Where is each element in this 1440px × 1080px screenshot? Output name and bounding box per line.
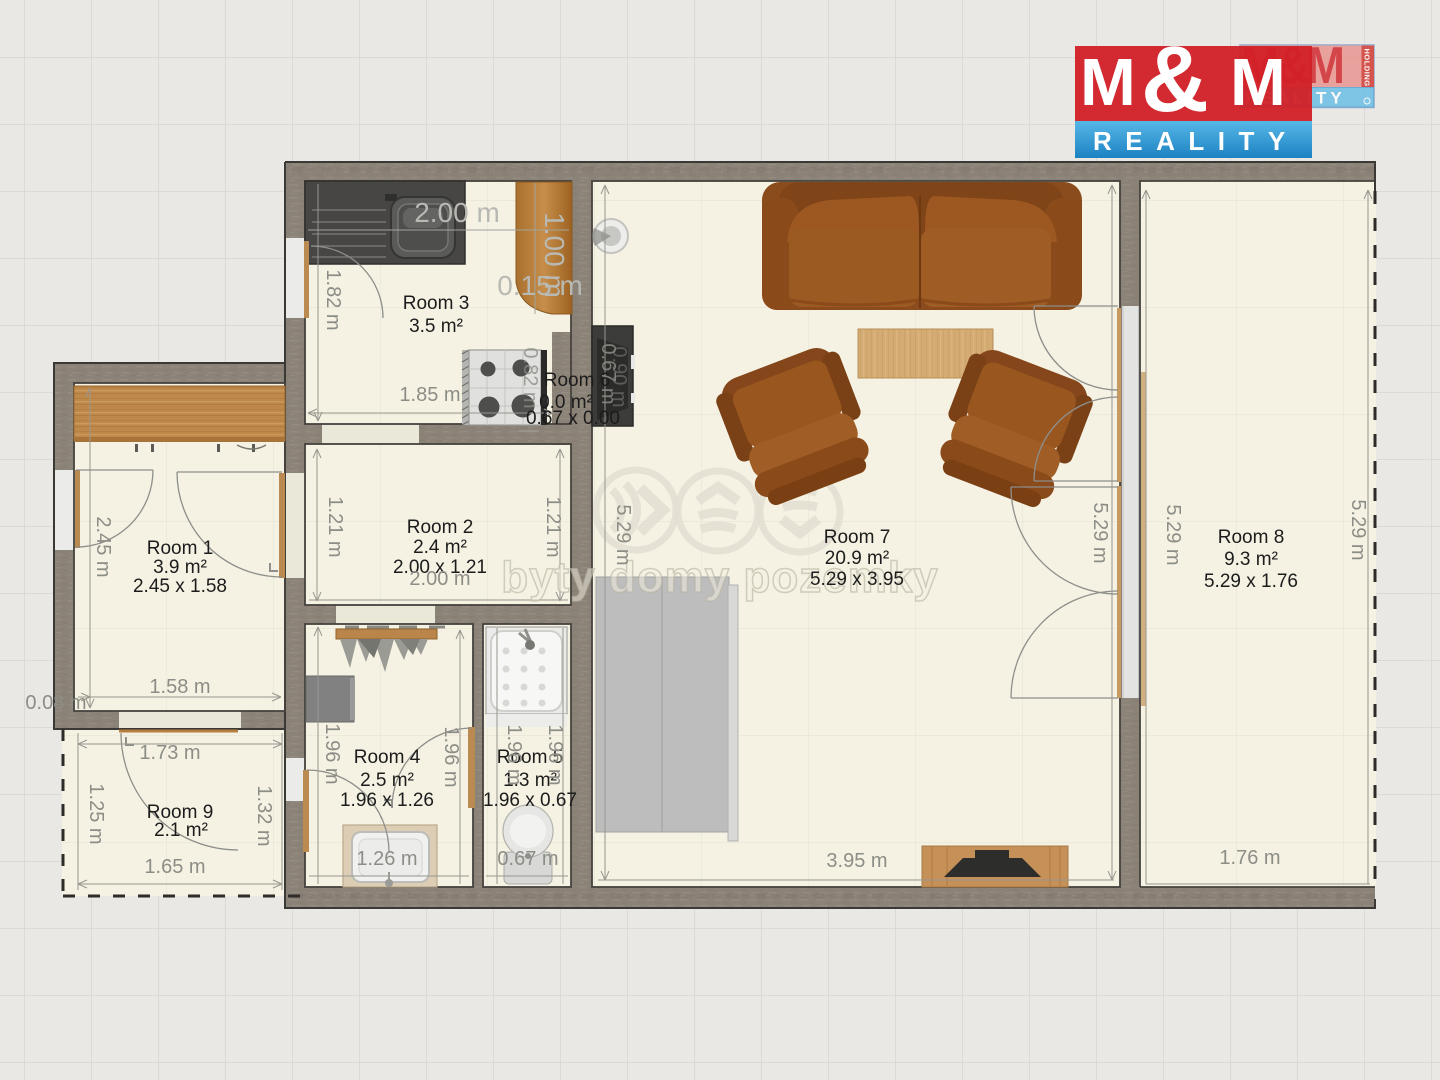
svg-text:0.90 m: 0.90 m [608,346,630,407]
svg-text:5.29 x 3.95: 5.29 x 3.95 [810,569,904,590]
svg-text:2.45 m: 2.45 m [92,516,114,577]
svg-text:REALITY: REALITY [1093,126,1299,156]
svg-text:3.5 m²: 3.5 m² [409,316,463,337]
svg-text:1.21 m: 1.21 m [542,496,564,557]
svg-text:Room 2: Room 2 [407,517,474,538]
svg-text:5.29 m: 5.29 m [1162,504,1184,565]
svg-text:5.29 m: 5.29 m [1347,499,1369,560]
svg-text:Room 7: Room 7 [824,527,891,548]
svg-text:M: M [1080,45,1136,120]
svg-text:0.67 x 0.00: 0.67 x 0.00 [526,408,620,429]
svg-text:2.4 m²: 2.4 m² [413,537,467,558]
svg-text:5.29 m: 5.29 m [612,504,634,565]
svg-text:1.96 m: 1.96 m [544,724,566,785]
svg-text:2.5 m²: 2.5 m² [360,770,414,791]
svg-text:Room 4: Room 4 [354,747,421,768]
svg-text:0.15 m: 0.15 m [497,270,583,301]
svg-text:Room 3: Room 3 [403,293,470,314]
svg-text:3.9 m²: 3.9 m² [153,557,207,578]
svg-text:2.00 m: 2.00 m [414,197,500,228]
svg-text:1.65 m: 1.65 m [144,856,205,878]
svg-text:1.25 m: 1.25 m [85,783,107,844]
svg-text:9.3 m²: 9.3 m² [1224,549,1278,570]
svg-text:20.9 m²: 20.9 m² [825,548,889,569]
svg-text:1.32 m: 1.32 m [253,785,275,846]
svg-text:0.08 m: 0.08 m [25,692,86,714]
svg-text:0.67 m: 0.67 m [497,848,558,870]
svg-text:Room 8: Room 8 [1218,527,1285,548]
svg-text:1.82 m: 1.82 m [322,269,344,330]
svg-text:0.82 m: 0.82 m [519,347,541,408]
svg-text:1.73 m: 1.73 m [139,742,200,764]
svg-text:1.96 x 1.26: 1.96 x 1.26 [340,790,434,811]
svg-text:M: M [1230,45,1286,120]
svg-text:1.96 x 0.67: 1.96 x 0.67 [483,790,577,811]
svg-text:1.85 m: 1.85 m [399,384,460,406]
svg-text:1.26 m: 1.26 m [356,848,417,870]
svg-text:&: & [1141,26,1209,131]
svg-text:2.1 m²: 2.1 m² [154,820,208,841]
svg-text:1.96 m: 1.96 m [503,724,525,785]
svg-text:1.96 m: 1.96 m [440,726,462,787]
svg-text:1.76 m: 1.76 m [1219,847,1280,869]
svg-text:2.00 m: 2.00 m [409,568,470,590]
svg-text:1.21 m: 1.21 m [324,496,346,557]
svg-text:HOLDING: HOLDING [1363,49,1372,87]
svg-text:5.29 m: 5.29 m [1089,502,1111,563]
svg-text:1.58 m: 1.58 m [149,676,210,698]
svg-text:1.96 m: 1.96 m [321,723,343,784]
svg-text:2.45 x 1.58: 2.45 x 1.58 [133,576,227,597]
svg-text:3.95 m: 3.95 m [826,850,887,872]
svg-text:Room 1: Room 1 [147,538,214,559]
svg-text:5.29 x 1.76: 5.29 x 1.76 [1204,571,1298,592]
